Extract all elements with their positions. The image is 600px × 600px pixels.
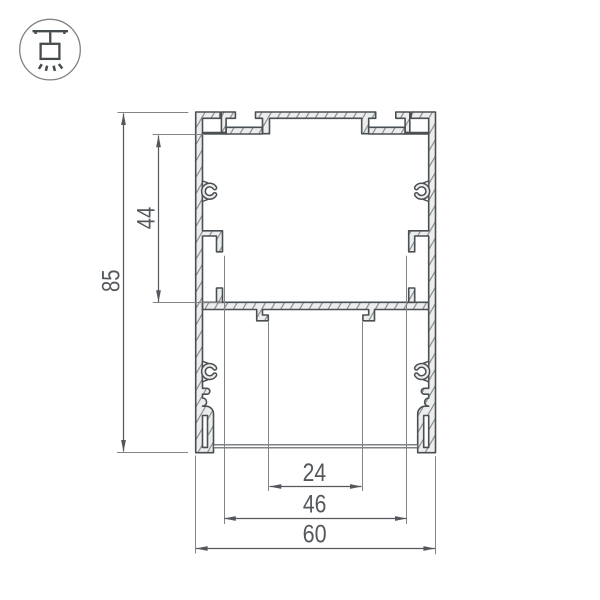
svg-text:85: 85 [98,269,126,292]
svg-text:60: 60 [303,520,327,548]
svg-text:46: 46 [303,490,327,518]
svg-text:44: 44 [133,207,161,230]
svg-text:24: 24 [303,459,327,487]
